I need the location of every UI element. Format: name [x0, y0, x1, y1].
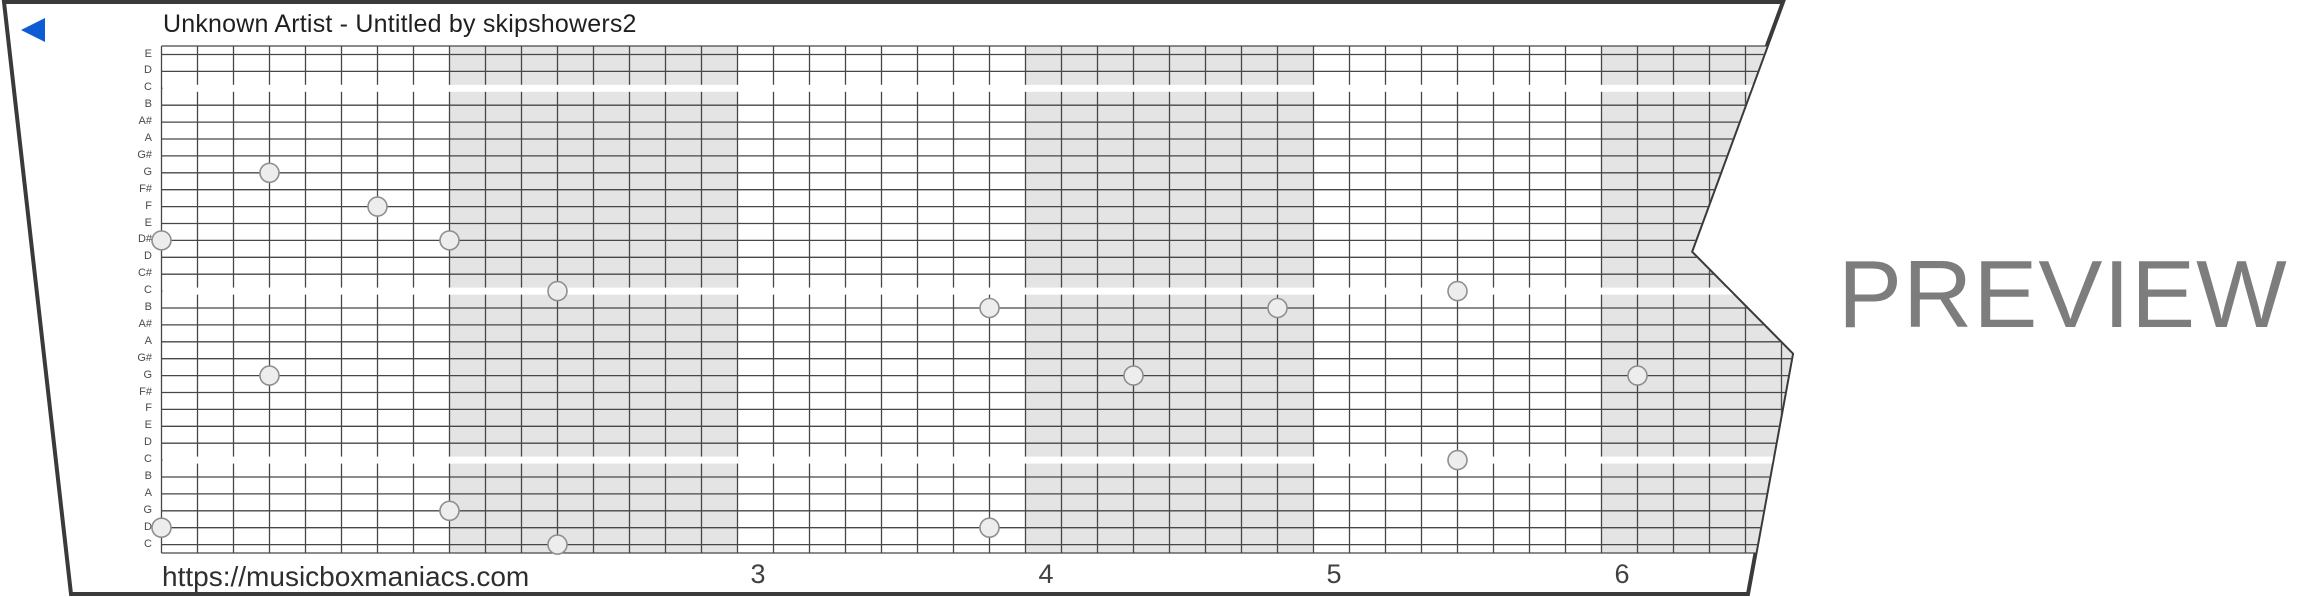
- note-hole-d: [980, 518, 999, 537]
- preview-watermark: PREVIEW: [1838, 247, 2288, 343]
- note-label: E: [60, 419, 152, 432]
- note-label: C#: [60, 267, 152, 280]
- melody-title: Unknown Artist - Untitled by skipshowers…: [163, 10, 637, 39]
- note-hole-ds: [440, 231, 459, 250]
- note-label: F: [60, 200, 152, 213]
- note-label: A: [60, 487, 152, 500]
- note-hole-b: [980, 299, 999, 318]
- note-label: A: [60, 132, 152, 145]
- beat-number-3: 3: [751, 559, 766, 590]
- note-label: D: [60, 521, 152, 534]
- note-label: C: [60, 538, 152, 551]
- note-label: C: [60, 453, 152, 466]
- note-label: G: [60, 166, 152, 179]
- note-label: D: [60, 64, 152, 77]
- note-hole-ds: [152, 231, 171, 250]
- note-hole-c: [1448, 282, 1467, 301]
- note-hole-g: [1628, 366, 1647, 385]
- note-hole-g: [260, 163, 279, 182]
- note-label: F#: [60, 183, 152, 196]
- note-label: G#: [60, 149, 152, 162]
- note-label: G#: [60, 352, 152, 365]
- note-label: D: [60, 436, 152, 449]
- note-label: E: [60, 217, 152, 230]
- note-label: G: [60, 504, 152, 517]
- note-label: F#: [60, 386, 152, 399]
- beat-number-4: 4: [1039, 559, 1054, 590]
- note-hole-g: [440, 501, 459, 520]
- note-label: A: [60, 335, 152, 348]
- note-hole-f: [368, 197, 387, 216]
- note-label: A#: [60, 115, 152, 128]
- note-hole-b: [1268, 299, 1287, 318]
- octave-separator-line: [163, 85, 1822, 92]
- play-triangle-icon[interactable]: [21, 18, 45, 42]
- note-label: D: [60, 250, 152, 263]
- note-label: G: [60, 369, 152, 382]
- beat-number-6: 6: [1615, 559, 1630, 590]
- note-hole-c: [548, 282, 567, 301]
- octave-separator-line: [163, 457, 1822, 464]
- note-label: B: [60, 98, 152, 111]
- music-strip-preview-page: Unknown Artist - Untitled by skipshowers…: [0, 0, 2310, 597]
- play-button[interactable]: [16, 12, 52, 48]
- note-label: B: [60, 470, 152, 483]
- site-url: https://musicboxmaniacs.com: [162, 561, 529, 593]
- note-label: A#: [60, 318, 152, 331]
- note-label: C: [60, 284, 152, 297]
- note-label: D#: [60, 233, 152, 246]
- note-label: C: [60, 81, 152, 94]
- octave-separator-line: [163, 288, 1822, 295]
- note-label: F: [60, 402, 152, 415]
- note-hole-g: [260, 366, 279, 385]
- beat-number-5: 5: [1327, 559, 1342, 590]
- note-hole-d: [152, 518, 171, 537]
- note-hole-c: [1448, 451, 1467, 470]
- note-label: E: [60, 48, 152, 61]
- note-hole-g: [1124, 366, 1143, 385]
- note-hole-c: [548, 535, 567, 554]
- note-label: B: [60, 301, 152, 314]
